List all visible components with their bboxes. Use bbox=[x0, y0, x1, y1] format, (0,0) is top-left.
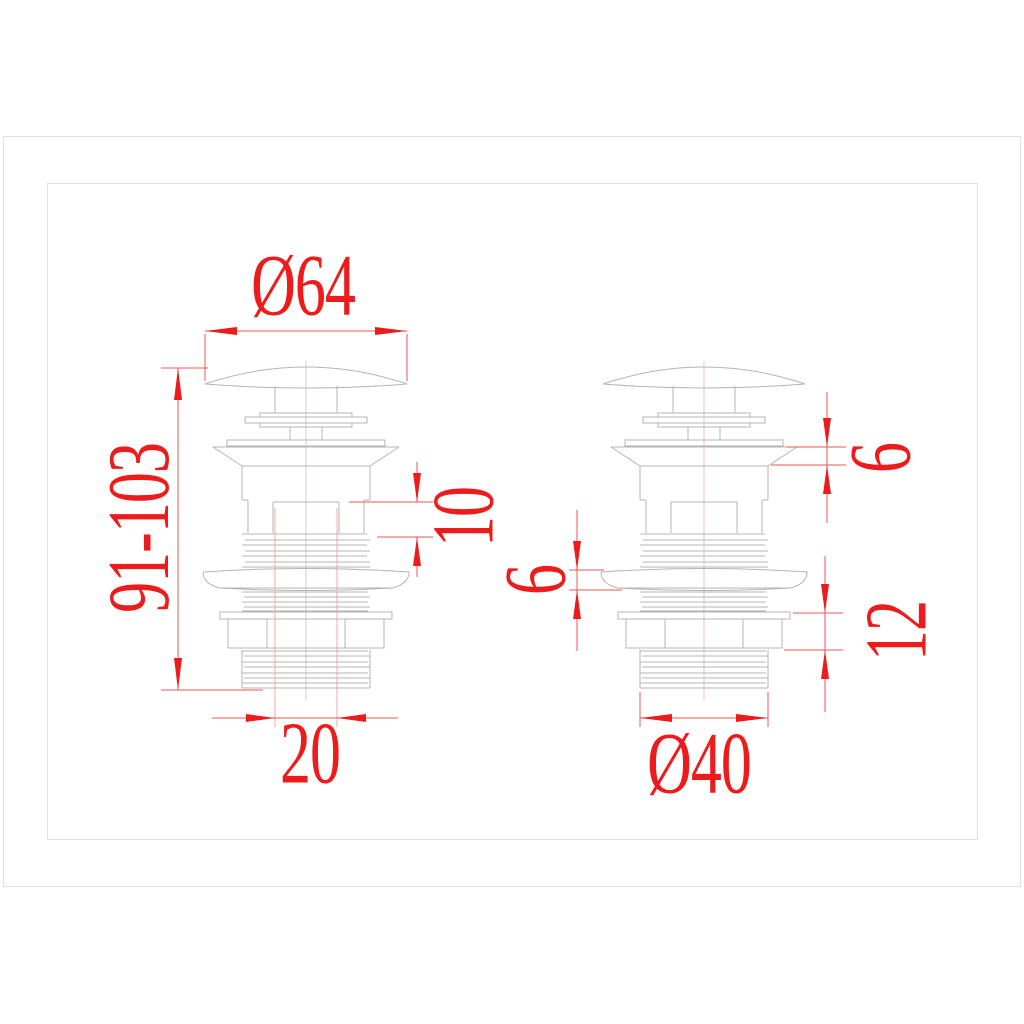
drawing-canvas bbox=[0, 0, 1024, 1024]
drain-drawing-left bbox=[203, 361, 409, 700]
technical-drawing-page: { "diagram": { "type": "technical-drawin… bbox=[0, 0, 1024, 1024]
dim-bore-offset bbox=[349, 462, 433, 577]
dim-inner-bore bbox=[212, 508, 398, 727]
dim-seal-washer-thickness bbox=[569, 510, 622, 651]
drain-drawing-right bbox=[601, 361, 807, 700]
dim-washer-nut-stack bbox=[784, 556, 843, 712]
dim-flange-lip-height bbox=[771, 392, 846, 523]
